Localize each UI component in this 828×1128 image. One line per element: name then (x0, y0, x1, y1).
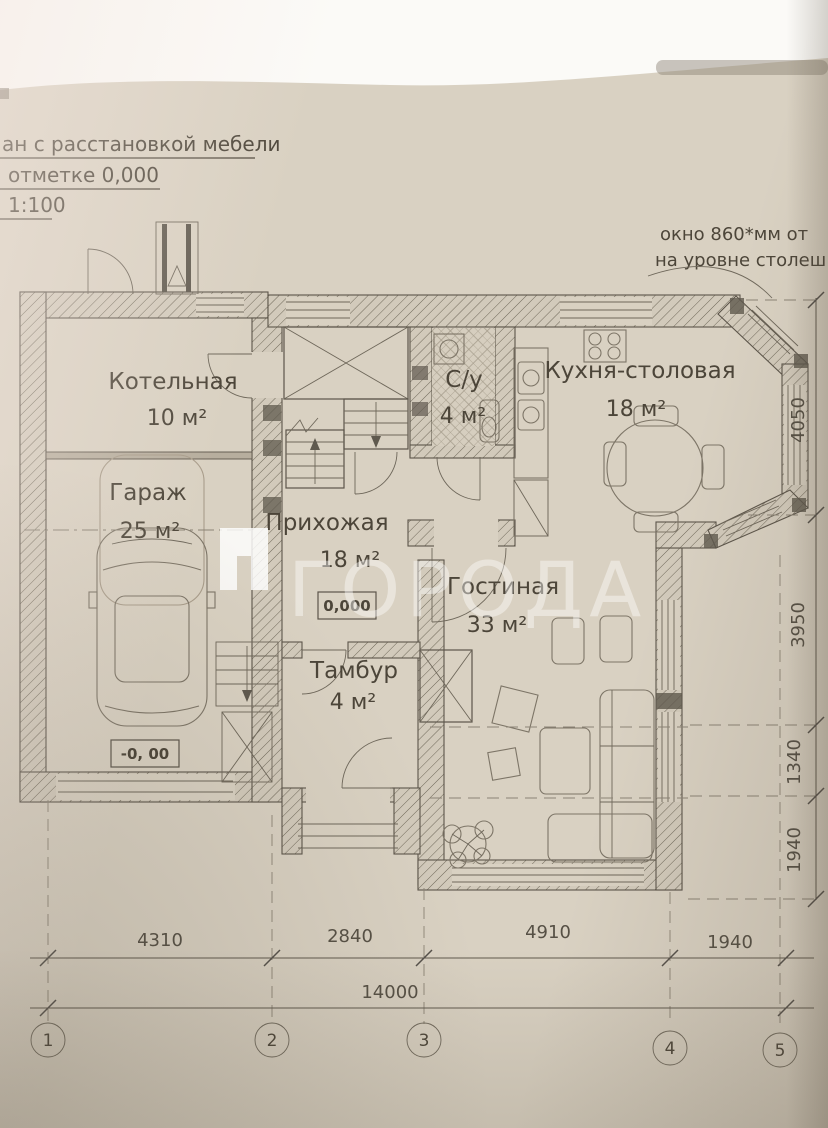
label-garage-name: Гараж (109, 480, 187, 506)
floorplan-drawing: ан с расстановкой мебели отметке 0,000 1… (0, 0, 828, 1128)
dim-1940: 1940 (707, 932, 753, 953)
floorplan-photo: ан с расстановкой мебели отметке 0,000 1… (0, 0, 828, 1128)
label-kitchen-area: 18 м² (606, 397, 666, 422)
window-note-line1: окно 860*мм от (660, 224, 808, 245)
watermark-text: ГОРОДА (288, 545, 647, 634)
axis-1: 1 (43, 1031, 54, 1051)
axis-4: 4 (665, 1039, 676, 1059)
dim-right-3950: 3950 (788, 602, 809, 648)
label-boiler-name: Котельная (108, 369, 237, 395)
axis-2: 2 (267, 1031, 278, 1051)
dim-2840: 2840 (327, 926, 373, 947)
dim-right-4050: 4050 (788, 397, 809, 443)
dim-right-1940: 1940 (784, 827, 805, 873)
elevation-garage: -0, 00 (121, 745, 169, 763)
title-line3: 1:100 (8, 193, 66, 217)
dim-4910: 4910 (525, 922, 571, 943)
title-line1: ан с расстановкой мебели (2, 132, 280, 156)
label-bathroom-area: 4 м² (440, 404, 486, 429)
title-line2: отметке 0,000 (8, 163, 159, 187)
axis-5: 5 (775, 1041, 786, 1061)
label-garage-area: 25 м² (120, 519, 180, 544)
dim-right-1340: 1340 (784, 739, 805, 785)
label-bathroom-name: С/у (445, 367, 482, 393)
garage-gate (56, 774, 235, 800)
label-kitchen-name: Кухня-столовая (544, 358, 735, 384)
dim-4310: 4310 (137, 930, 183, 951)
window-boiler (196, 294, 244, 316)
label-boiler-area: 10 м² (147, 406, 207, 431)
window-hall-top (286, 297, 350, 325)
label-hall-name: Прихожая (265, 510, 388, 536)
window-kitchen-top (560, 297, 652, 325)
dim-14000: 14000 (361, 982, 418, 1003)
window-living-bottom (452, 864, 644, 886)
label-tambour-name: Тамбур (309, 658, 398, 684)
photo-smudge (656, 60, 828, 75)
label-tambour-area: 4 м² (330, 690, 376, 715)
axis-3: 3 (419, 1031, 430, 1051)
